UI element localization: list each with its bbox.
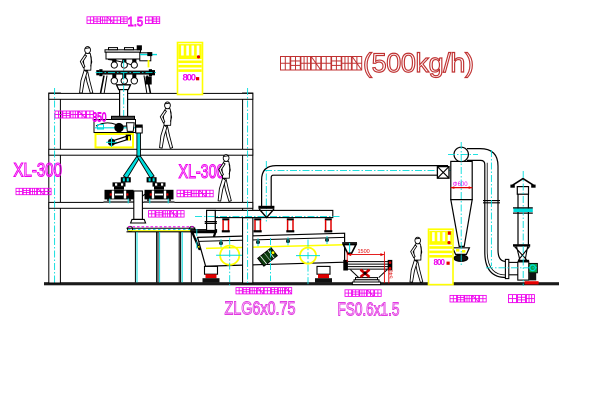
svg-text:ZLG6x0.75: ZLG6x0.75 [225,298,296,319]
svg-text:540: 540 [389,269,395,278]
svg-text:800: 800 [183,73,197,84]
svg-text:(500kg/h): (500kg/h) [363,48,474,78]
svg-text:800: 800 [434,258,446,267]
svg-text:1500: 1500 [358,249,370,255]
svg-text:XL-300: XL-300 [179,161,225,183]
svg-text:1.5: 1.5 [128,14,144,29]
svg-text:XL-300: XL-300 [14,159,62,181]
svg-text:350: 350 [93,111,107,125]
svg-text:FS0.6x1.5: FS0.6x1.5 [338,300,400,321]
